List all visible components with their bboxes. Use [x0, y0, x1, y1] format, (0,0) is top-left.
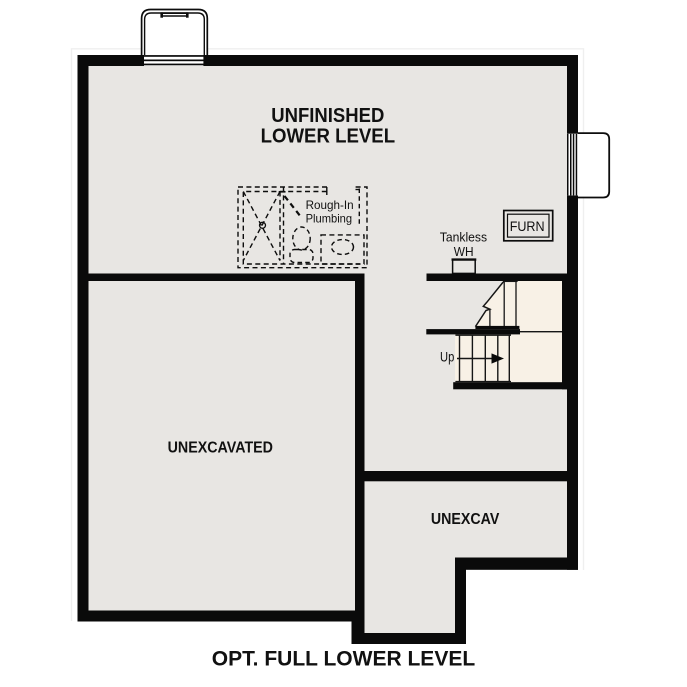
svg-text:WH: WH [454, 245, 474, 259]
svg-text:OPT. FULL LOWER LEVEL: OPT. FULL LOWER LEVEL [212, 646, 475, 670]
svg-text:UNFINISHED: UNFINISHED [271, 105, 384, 127]
svg-text:LOWER LEVEL: LOWER LEVEL [261, 125, 396, 147]
svg-text:Rough-In: Rough-In [306, 198, 354, 212]
svg-text:Tankless: Tankless [440, 231, 487, 245]
svg-text:Up: Up [440, 349, 454, 364]
svg-text:FURN: FURN [510, 218, 545, 234]
svg-text:Plumbing: Plumbing [306, 211, 353, 225]
svg-text:UNEXCAVATED: UNEXCAVATED [168, 440, 273, 457]
svg-text:UNEXCAV: UNEXCAV [431, 511, 500, 528]
